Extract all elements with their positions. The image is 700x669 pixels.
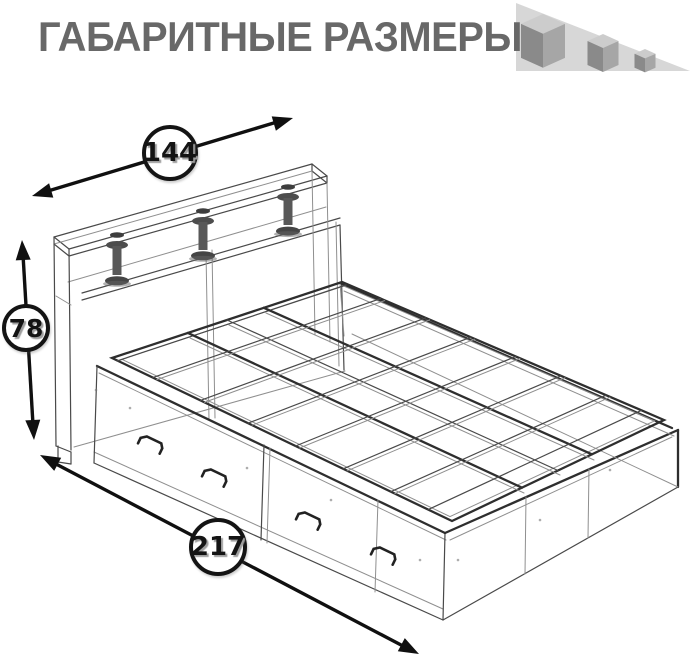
- post: [103, 232, 131, 287]
- decreasing-cubes-icon: [516, 3, 690, 72]
- length-dimension-badge: 217: [189, 518, 247, 576]
- headboard-posts: [103, 184, 302, 287]
- height-dimension-badge: 78: [2, 304, 50, 352]
- bed-technical-drawing: [0, 0, 700, 669]
- page-title: ГАБАРИТНЫЕ РАЗМЕРЫ: [38, 13, 522, 61]
- bed-sketch: [54, 164, 678, 620]
- post: [274, 184, 302, 237]
- drawer-handle: [371, 545, 397, 564]
- post: [189, 208, 217, 262]
- dimension-diagram-page: ГАБАРИТНЫЕ РАЗМЕРЫ 144 78 217: [0, 0, 700, 669]
- bed-base: [94, 283, 678, 620]
- cube-small: [635, 49, 656, 72]
- slat-grid: [112, 282, 664, 521]
- drawer-handle: [138, 434, 164, 453]
- cube-medium: [588, 34, 619, 72]
- drawer-handle: [202, 467, 228, 486]
- cube-large: [521, 14, 565, 68]
- drawer-handle: [296, 510, 322, 529]
- width-dimension-badge: 144: [142, 125, 198, 181]
